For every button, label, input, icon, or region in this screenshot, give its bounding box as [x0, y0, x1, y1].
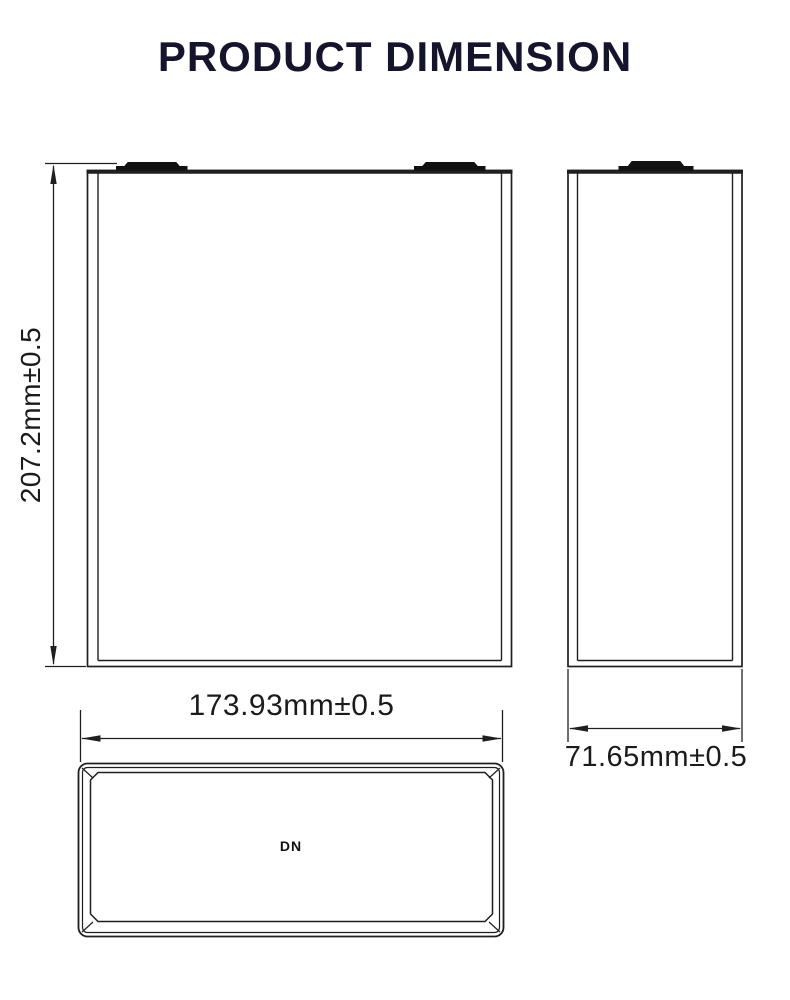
width-dimension-label: 71.65mm±0.5 — [560, 741, 752, 774]
length-arrow-left-icon — [81, 735, 100, 741]
width-arrow-left-icon — [569, 725, 588, 731]
top-view-vent-mark: DN — [231, 838, 351, 854]
side-view-terminal — [619, 162, 693, 171]
technical-drawing — [0, 0, 790, 1000]
height-dimension — [45, 164, 117, 667]
height-arrow-down-icon — [50, 646, 56, 666]
front-view — [87, 163, 513, 667]
side-view — [567, 162, 743, 667]
side-view-body — [568, 171, 742, 667]
top-view-chamfer-br — [489, 922, 500, 932]
length-arrow-right-icon — [483, 735, 502, 741]
width-dimension — [568, 669, 742, 742]
width-arrow-right-icon — [722, 725, 741, 731]
height-dimension-label: 207.2mm±0.5 — [15, 255, 47, 575]
product-dimension-page: PRODUCT DIMENSION — [0, 0, 790, 1000]
height-arrow-up-icon — [50, 165, 56, 185]
front-view-body — [88, 171, 512, 667]
top-view-chamfer-tl — [82, 768, 93, 778]
top-view-chamfer-bl — [82, 922, 93, 932]
front-view-negative-terminal — [117, 163, 188, 171]
front-view-positive-terminal — [415, 163, 486, 171]
length-dimension-label: 173.93mm±0.5 — [80, 689, 503, 723]
top-view-chamfer-tr — [489, 768, 500, 778]
